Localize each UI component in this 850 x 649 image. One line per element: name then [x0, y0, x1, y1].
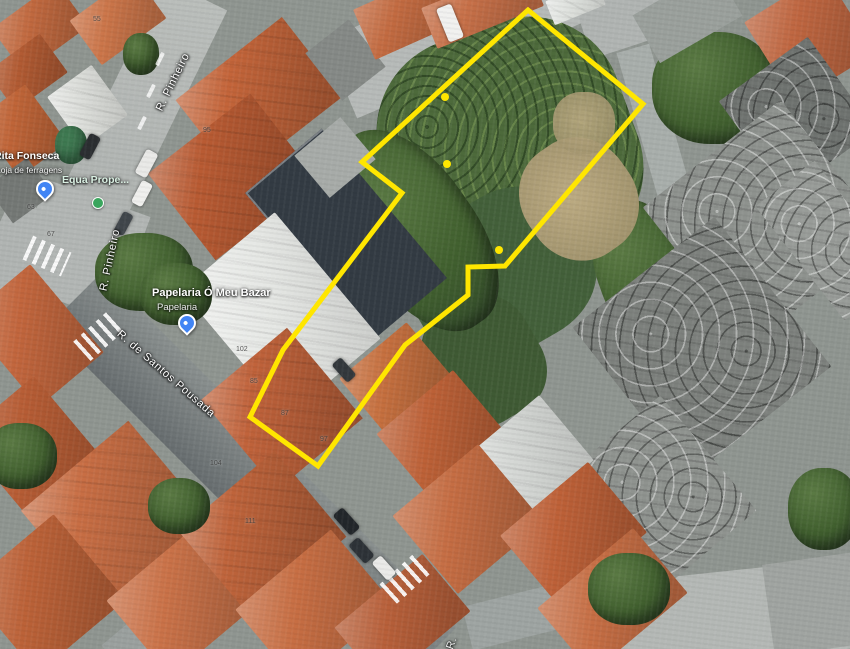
house-number: 55: [93, 16, 101, 23]
house-number: 67: [47, 231, 55, 238]
place-label-fonseca[interactable]: Rita Fonseca: [0, 150, 59, 162]
tree-canopy: [788, 468, 850, 550]
place-pin-equa[interactable]: [92, 197, 104, 209]
house-number: 85: [250, 378, 258, 385]
house-number: 63: [27, 204, 35, 211]
house-number: 111: [245, 518, 256, 525]
street-label-bottom-fragment: R.: [444, 635, 460, 649]
place-category-fonseca: Loja de ferragens: [0, 165, 62, 175]
tree-canopy: [55, 126, 87, 164]
place-label-equa[interactable]: Equa Prope...: [62, 174, 129, 186]
house-number: 97: [320, 436, 328, 443]
building-roof: [762, 552, 850, 649]
house-number: 102: [236, 346, 248, 353]
house-number: 104: [210, 460, 222, 467]
tree-canopy: [123, 33, 159, 75]
tree-canopy: [588, 553, 670, 625]
place-category-papelaria: Papelaria: [157, 302, 197, 313]
satellite-map-canvas[interactable]: R. Pinheiro R. Pinheiro R. de Santos Pou…: [0, 0, 850, 649]
house-number: 95: [203, 127, 211, 134]
tree-canopy: [148, 478, 210, 534]
place-label-papelaria[interactable]: Papelaria Ó Meu Bazar: [152, 287, 271, 299]
house-number: 87: [281, 410, 289, 417]
dirt-patch: [553, 92, 615, 154]
